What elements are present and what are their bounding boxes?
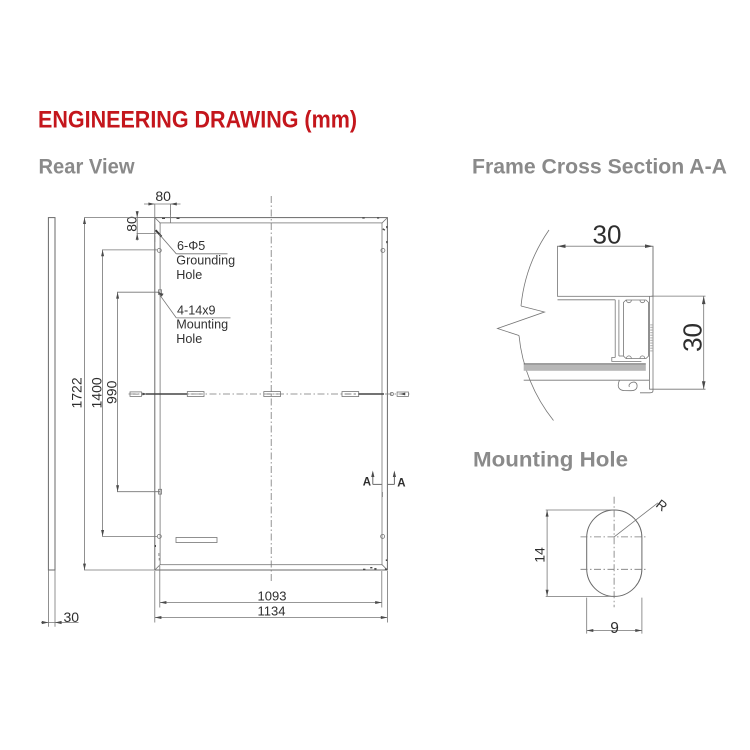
svg-text:1722: 1722 — [69, 377, 85, 408]
svg-text:Hole: Hole — [176, 332, 202, 346]
svg-text:6-Φ5: 6-Φ5 — [177, 239, 205, 253]
svg-text:1093: 1093 — [258, 588, 287, 603]
svg-text:80: 80 — [155, 188, 171, 204]
svg-text:30: 30 — [64, 609, 80, 625]
svg-text:9: 9 — [610, 620, 619, 637]
svg-text:Grounding: Grounding — [176, 254, 235, 268]
svg-text:Mounting: Mounting — [176, 318, 228, 332]
svg-text:14: 14 — [532, 547, 548, 563]
svg-text:4-14x9: 4-14x9 — [177, 303, 216, 317]
svg-text:A: A — [363, 477, 371, 489]
svg-text:Mounting Hole: Mounting Hole — [473, 448, 628, 472]
svg-text:1400: 1400 — [89, 377, 105, 408]
svg-text:ENGINEERING DRAWING (mm): ENGINEERING DRAWING (mm) — [38, 107, 357, 134]
svg-text:80: 80 — [123, 216, 139, 232]
svg-text:990: 990 — [104, 380, 120, 404]
svg-text:Hole: Hole — [176, 268, 202, 282]
svg-text:1134: 1134 — [258, 603, 286, 618]
svg-text:Rear View: Rear View — [39, 154, 135, 178]
svg-text:Frame Cross Section A-A: Frame Cross Section A-A — [472, 154, 727, 178]
svg-text:A: A — [397, 478, 405, 490]
svg-text:30: 30 — [678, 323, 708, 352]
svg-text:30: 30 — [593, 219, 622, 249]
